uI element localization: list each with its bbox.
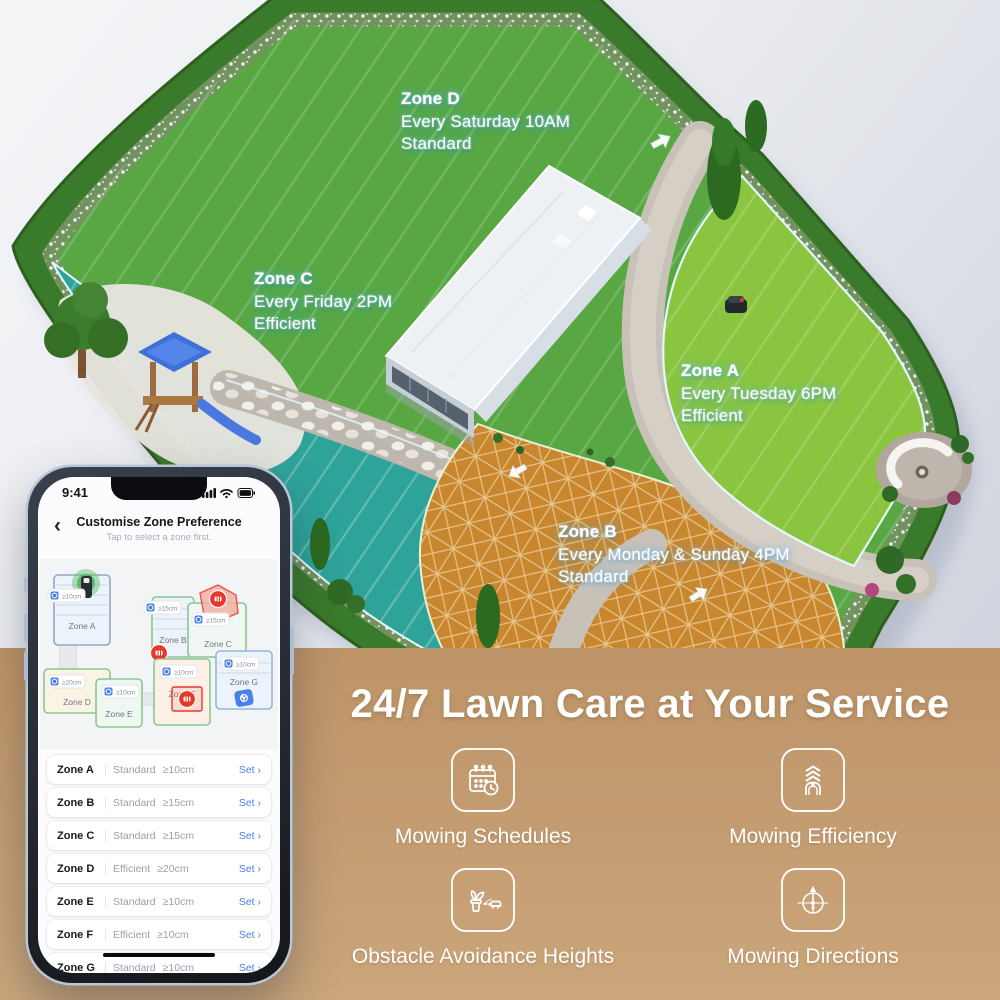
zone-c-schedule: Every Friday 2PM [254, 291, 392, 314]
map-corridor [60, 645, 76, 671]
feature-mowing-schedules: Mowing Schedules [318, 748, 648, 849]
zone-row-d[interactable]: Zone D Efficient ≥20cm Set › [47, 854, 271, 883]
set-button[interactable]: Set › [239, 863, 261, 875]
phone-power-button [290, 627, 294, 675]
mowing-direction-icon: 90 [781, 868, 845, 932]
set-button[interactable]: Set › [239, 929, 261, 941]
zone-a-schedule: Every Tuesday 6PM [681, 383, 837, 406]
zone-c-name: Zone C [254, 268, 392, 291]
status-icons [202, 487, 256, 499]
zone-row-name: Zone A [57, 764, 103, 776]
svg-text:≥15cm: ≥15cm [158, 606, 177, 613]
svg-text:Zone C: Zone C [204, 639, 232, 649]
badge-zone-a: ≥10cm [48, 589, 85, 602]
promo-heading: 24/7 Lawn Care at Your Service [330, 682, 970, 727]
page-title: Customise Zone Preference [38, 515, 280, 529]
phone-mute-switch [24, 577, 28, 593]
zone-a-mode: Efficient [681, 405, 837, 428]
zone-b-mode: Standard [558, 566, 790, 589]
svg-text:≥10cm: ≥10cm [174, 670, 193, 677]
svg-text:Zone A: Zone A [69, 621, 96, 631]
zone-row-c[interactable]: Zone C Standard ≥15cm Set › [47, 821, 271, 850]
home-indicator[interactable] [103, 953, 215, 958]
zone-row-name: Zone E [57, 896, 103, 908]
zone-row-height: ≥15cm [163, 797, 194, 809]
zone-row-height: ≥10cm [163, 896, 194, 908]
badge-zone-d: ≥20cm [48, 675, 85, 688]
zone-row-name: Zone C [57, 830, 103, 842]
phone-volume-up-button [24, 613, 28, 643]
feature-mowing-directions: 90 Mowing Directions [648, 868, 978, 969]
zone-row-mode: Efficient [113, 863, 150, 875]
feature-obstacle-avoidance: Obstacle Avoidance Heights [318, 868, 648, 969]
robot-marker-icon [210, 591, 227, 608]
set-button[interactable]: Set › [239, 764, 261, 776]
zone-row-mode: Standard [113, 764, 156, 776]
app-header: ‹ Customise Zone Preference Tap to selec… [38, 515, 280, 543]
badge-zone-f: ≥10cm [160, 665, 197, 678]
zone-c-label: Zone C Every Friday 2PM Efficient [254, 268, 392, 336]
phone-mockup: 9:41 [28, 467, 290, 983]
zone-row-name: Zone F [57, 929, 103, 941]
zone-d-name: Zone D [401, 88, 570, 111]
charging-station-icon [234, 689, 255, 708]
zone-d-schedule: Every Saturday 10AM [401, 111, 570, 134]
svg-text:Zone D: Zone D [63, 697, 91, 707]
feature-label-efficiency: Mowing Efficiency [648, 825, 978, 849]
zone-row-height: ≥15cm [163, 830, 194, 842]
wifi-icon [221, 489, 232, 497]
zone-row-e[interactable]: Zone E Standard ≥10cm Set › [47, 887, 271, 916]
zone-d-label: Zone D Every Saturday 10AM Standard [401, 88, 570, 156]
map-zone-a[interactable]: Zone A [54, 569, 110, 645]
feature-label-directions: Mowing Directions [648, 945, 978, 969]
set-button[interactable]: Set › [239, 797, 261, 809]
robot-marker-icon [179, 691, 196, 708]
feature-label-schedules: Mowing Schedules [318, 825, 648, 849]
zone-row-mode: Standard [113, 962, 156, 974]
feature-label-avoidance: Obstacle Avoidance Heights [318, 945, 648, 969]
badge-zone-g: ≥10cm [222, 657, 259, 670]
battery-icon [238, 488, 255, 497]
zone-a-name: Zone A [681, 360, 837, 383]
phone-notch [111, 477, 207, 500]
badge-zone-b: ≥15cm [144, 601, 181, 614]
zone-b-name: Zone B [558, 521, 790, 544]
zone-b-schedule: Every Monday & Sunday 4PM [558, 544, 790, 567]
svg-text:Zone G: Zone G [230, 677, 258, 687]
svg-text:≥10cm: ≥10cm [62, 594, 81, 601]
zone-row-mode: Standard [113, 896, 156, 908]
badge-zone-c: ≥15cm [192, 613, 229, 626]
zone-row-mode: Efficient [113, 929, 150, 941]
zone-row-height: ≥10cm [163, 764, 194, 776]
feature-mowing-efficiency: Mowing Efficiency [648, 748, 978, 849]
svg-text:≥20cm: ≥20cm [62, 680, 81, 687]
zone-row-name: Zone G [57, 962, 103, 974]
page-subtitle: Tap to select a zone first. [38, 532, 280, 543]
zone-row-mode: Standard [113, 797, 156, 809]
zone-row-a[interactable]: Zone A Standard ≥10cm Set › [47, 755, 271, 784]
phone-screen: 9:41 [38, 477, 280, 973]
phone-volume-down-button [24, 651, 28, 681]
svg-text:Zone B: Zone B [159, 635, 187, 645]
zone-a-label: Zone A Every Tuesday 6PM Efficient [681, 360, 837, 428]
zone-c-mode: Efficient [254, 313, 392, 336]
zone-b-label: Zone B Every Monday & Sunday 4PM Standar… [558, 521, 790, 589]
zone-row-mode: Standard [113, 830, 156, 842]
svg-text:Zone E: Zone E [105, 709, 133, 719]
patio [876, 432, 974, 508]
svg-text:≥15cm: ≥15cm [206, 618, 225, 625]
zone-row-name: Zone B [57, 797, 103, 809]
set-button[interactable]: Set › [239, 896, 261, 908]
zone-row-height: ≥10cm [163, 962, 194, 974]
svg-text:90: 90 [811, 905, 816, 910]
badge-zone-e: ≥10cm [102, 685, 139, 698]
calendar-clock-icon [451, 748, 515, 812]
zone-row-f[interactable]: Zone F Efficient ≥10cm Set › [47, 920, 271, 949]
zone-row-name: Zone D [57, 863, 103, 875]
zone-d-mode: Standard [401, 133, 570, 156]
zone-row-height: ≥10cm [157, 929, 188, 941]
status-time: 9:41 [62, 485, 88, 500]
mower-efficiency-icon [781, 748, 845, 812]
zone-row-height: ≥20cm [157, 863, 188, 875]
zone-list: Zone A Standard ≥10cm Set › Zone B Stand… [47, 755, 271, 973]
zone-row-b[interactable]: Zone B Standard ≥15cm Set › [47, 788, 271, 817]
page: Zone D Every Saturday 10AM Standard Zone… [0, 0, 1000, 1000]
set-button[interactable]: Set › [239, 962, 261, 974]
obstacle-avoidance-icon [451, 868, 515, 932]
set-button[interactable]: Set › [239, 830, 261, 842]
svg-text:≥10cm: ≥10cm [236, 662, 255, 669]
back-button[interactable]: ‹ [54, 515, 61, 536]
svg-text:≥10cm: ≥10cm [116, 690, 135, 697]
robot-mower [725, 296, 747, 313]
zone-map[interactable]: Zone A Zone B [40, 559, 278, 751]
